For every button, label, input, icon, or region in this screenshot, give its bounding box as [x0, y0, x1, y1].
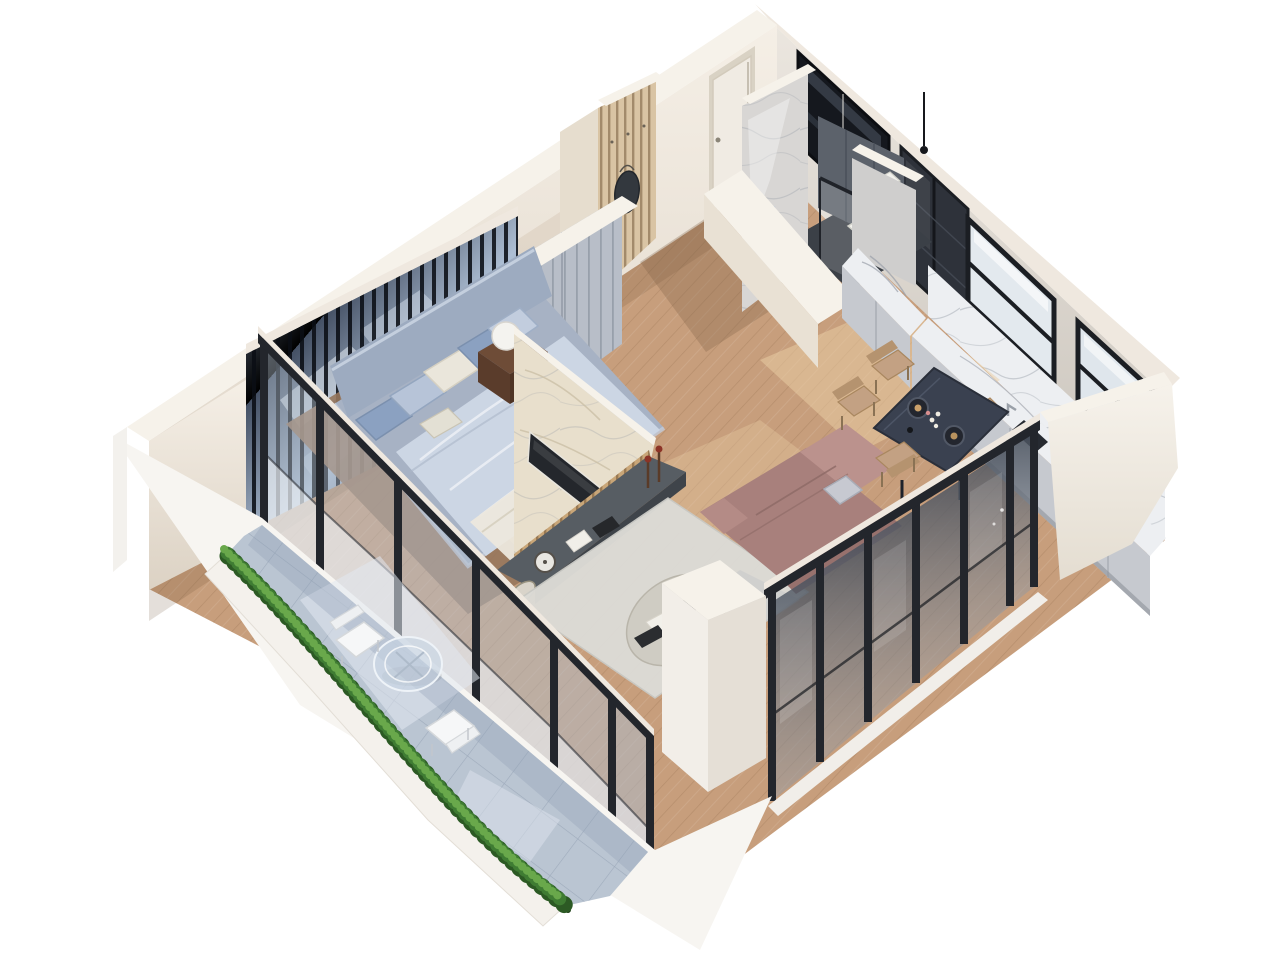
- decor-clock: [535, 552, 555, 572]
- kitchen-upper-cabinets: [901, 147, 968, 330]
- entry-door-leaf: [713, 56, 751, 210]
- tableware: [907, 398, 964, 446]
- outdoor-chair-1: [330, 605, 384, 668]
- dining-chair-3: [964, 398, 1004, 428]
- wash-basin: [872, 172, 900, 191]
- decor-white-box: [566, 530, 592, 552]
- bathroom-marble-wall: [742, 64, 816, 312]
- decor-dark-box: [592, 516, 620, 538]
- ne-wall-inner-face: [775, 26, 1164, 542]
- sofa-armrest: [700, 498, 748, 534]
- coat-slat-wall: [598, 72, 664, 292]
- door-handle: [716, 138, 721, 143]
- base-cabinets: [912, 336, 1150, 616]
- hedge-dark: [228, 556, 566, 906]
- bed-throw-blanket: [470, 436, 634, 566]
- bathroom-half-wall: [704, 170, 856, 368]
- ne-wall-top-band: [755, 4, 1180, 394]
- kitchen-window-2: [1078, 322, 1153, 474]
- glass-pane-dark: [868, 509, 916, 722]
- facade-top-rail-se: [764, 420, 1040, 600]
- glass-pane: [554, 643, 612, 855]
- wood-floor-slab: [149, 173, 1165, 880]
- bedroom-dark-floor: [286, 384, 540, 614]
- towel-radiator: [746, 206, 774, 266]
- floorplan-svg: [0, 0, 1280, 960]
- floor-wall-shadow: [149, 173, 777, 621]
- west-corner-outer: [113, 427, 127, 572]
- kitchen-counter: [912, 318, 1166, 556]
- hanging-bag: [612, 170, 642, 215]
- hall-stub-wall: [560, 108, 598, 318]
- shower-wall-dark: [818, 116, 904, 250]
- wardrobe: [502, 196, 638, 432]
- decor-books-white: [646, 608, 682, 634]
- floor: [149, 173, 1165, 880]
- sofa-back: [782, 514, 902, 594]
- floor-sun-patch-1: [760, 300, 1000, 452]
- bathroom-floor: [792, 192, 932, 290]
- bathroom: [704, 64, 932, 368]
- decor-books-dark: [634, 625, 666, 648]
- bedroom-furniture: [286, 246, 664, 614]
- area-rug: [515, 498, 808, 698]
- dining-table: [874, 368, 1008, 504]
- dining-area: [832, 340, 1008, 504]
- kitchen: [842, 248, 1166, 616]
- sw-glass-facade: [258, 326, 654, 890]
- facade-top-rail: [258, 333, 654, 746]
- facade-mullions: [260, 338, 654, 890]
- console-decor: [507, 516, 620, 607]
- sofa-pillow: [824, 476, 862, 504]
- coffee-table: [609, 556, 743, 685]
- bath-kitchen-wall: [852, 144, 924, 286]
- hedge-light: [224, 549, 562, 899]
- kitchen-window-1: [968, 219, 1054, 382]
- kitchen-sink: [1012, 420, 1048, 452]
- tv-screen: [528, 432, 618, 530]
- nw-wall: [127, 10, 777, 590]
- dining-chair-4: [876, 442, 920, 487]
- nightstand: [478, 330, 548, 404]
- facade-mullions-se: [768, 423, 1038, 801]
- south-column: [662, 560, 766, 792]
- glass-pane: [264, 348, 320, 588]
- tv-marble-panel: [514, 334, 654, 572]
- hall-floor-shade: [640, 182, 846, 352]
- glass-pane-dark: [1010, 433, 1034, 606]
- sofa-chaise: [800, 424, 898, 494]
- floor-sun-patch-2: [620, 420, 842, 552]
- glass-pane-dark: [964, 448, 1010, 644]
- glass-pane: [398, 484, 476, 731]
- bed-headboard: [330, 246, 552, 418]
- sofa-base: [700, 448, 888, 580]
- living-room: [515, 424, 902, 698]
- balcony: [113, 427, 772, 950]
- dining-chair-1: [866, 340, 914, 394]
- planter-wall: [205, 553, 565, 926]
- se-sill: [768, 592, 1048, 816]
- bed-platform: [334, 282, 664, 566]
- se-glass-facade: [764, 413, 1048, 816]
- outdoor-table: [374, 637, 442, 691]
- glass-pane-dark: [772, 571, 820, 801]
- sofa: [700, 424, 902, 594]
- bed-pillows: [356, 308, 538, 440]
- glass-pane: [612, 702, 650, 890]
- outdoor-chair-2: [426, 710, 480, 756]
- media-console: [497, 456, 686, 604]
- bathroom-window: [798, 52, 889, 228]
- counter-return: [842, 248, 926, 388]
- hedge: [224, 549, 573, 914]
- bedroom-west-wall: [149, 380, 246, 590]
- east-corner-wall: [1040, 372, 1178, 580]
- nw-wall-top-band: [127, 10, 777, 441]
- toilet: [848, 212, 886, 238]
- nw-wall-inner-face: [149, 25, 777, 590]
- glass-pane: [320, 405, 398, 660]
- glass-pane-dark: [916, 478, 964, 683]
- shower-screen: [820, 178, 874, 290]
- ne-wall: [755, 4, 1180, 542]
- entry-door: [709, 46, 755, 216]
- pendant-light: [920, 92, 928, 154]
- tv-wall: [497, 326, 686, 607]
- table-lamp: [492, 322, 520, 350]
- tv-slat-strip: [514, 450, 652, 572]
- hedge-mid: [227, 553, 565, 903]
- balcony-floor: [228, 525, 648, 906]
- kitchen-faucet: [1008, 405, 1016, 416]
- decor-platter: [507, 577, 539, 607]
- candles: [930, 418, 935, 423]
- decor-black-bowl: [683, 593, 701, 611]
- mirror-accent-wall: [246, 206, 518, 532]
- glass-pane: [476, 563, 554, 802]
- apartment-render: [0, 0, 1280, 960]
- dining-chair-2: [832, 376, 880, 430]
- glass-pane-dark: [820, 540, 868, 762]
- entry-hall: [560, 72, 664, 318]
- building-footprint-white: [113, 436, 772, 950]
- bed-duvet: [396, 336, 660, 556]
- candle-holders: [645, 446, 663, 489]
- kitchen-backsplash: [928, 265, 1165, 540]
